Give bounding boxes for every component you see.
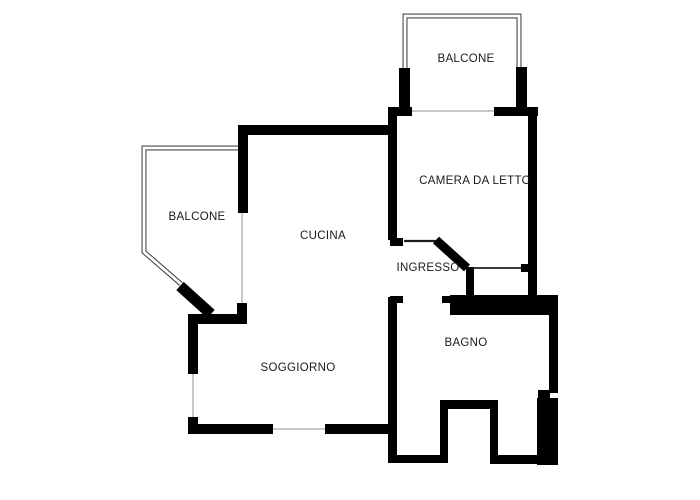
walls [180,67,558,465]
wall-segment [440,400,498,409]
wall-segment-diagonal [180,286,211,314]
wall-segment [238,125,397,135]
floor-plan: BALCONE CAMERA DA LETTO BALCONE CUCINA I… [0,0,700,500]
wall-segment [450,295,558,315]
wall-segment [466,267,474,298]
wall-segment [325,424,389,434]
wall-segment [549,313,558,393]
wall-segment [192,314,247,324]
wall-segment [399,68,410,113]
wall-segment [188,424,273,434]
room-label-cucina: CUCINA [300,230,346,242]
corridor-opening-cap [521,264,529,272]
wall-segment [188,314,198,374]
wall-segment [537,398,558,465]
wall-segment [390,238,403,246]
wall-segment [440,400,448,463]
room-label-bagno: BAGNO [444,337,487,349]
wall-segment [516,67,527,113]
wall-segment [528,110,537,297]
room-label-balcone-left: BALCONE [168,211,225,223]
room-label-soggiorno: SOGGIORNO [261,362,336,374]
wall-segment [490,400,498,463]
wall-segment [388,455,448,463]
room-label-balcone-top: BALCONE [437,53,494,65]
wall-segment [238,125,248,213]
room-label-camera-da-letto: CAMERA DA LETTO [419,175,531,187]
room-label-ingresso: INGRESSO [396,262,459,274]
floor-plan-drawing [0,0,700,500]
wall-segment [390,296,403,303]
wall-segment [388,297,397,463]
wall-segment [490,455,558,464]
